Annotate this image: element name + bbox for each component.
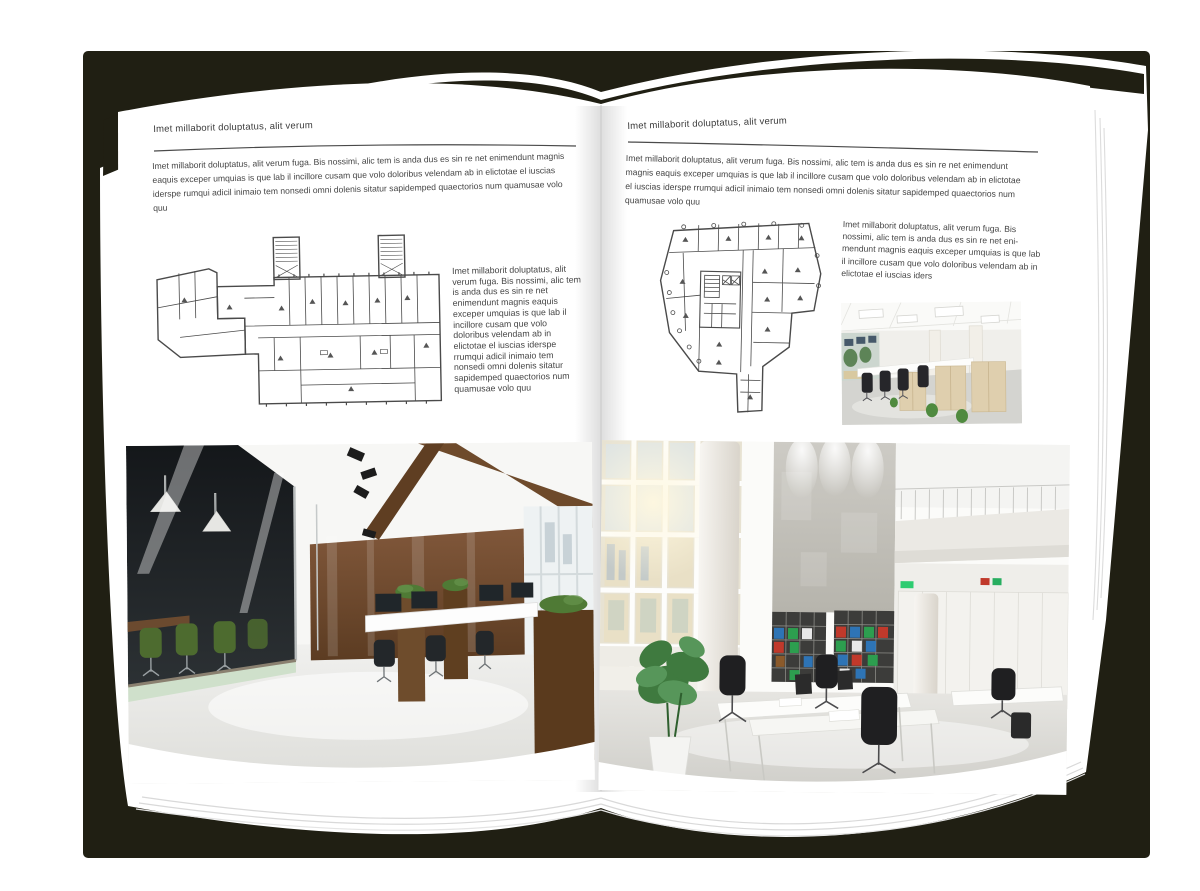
- left-intro-paragraph: Imet millaborit doluptatus, alit verum f…: [152, 150, 567, 216]
- dark-loft-office-photo: [126, 442, 595, 784]
- right-small-photo: [841, 301, 1022, 425]
- left-side-column: Imet millaborit doluptatus, alit verum f…: [452, 263, 585, 394]
- left-header-text: Imet millaborit doluptatus, alit verum: [153, 120, 313, 135]
- right-side-column: Imet millaborit doluptatus, alit verum f…: [841, 218, 1043, 285]
- bright-cubicle-office-photo: [841, 301, 1022, 425]
- right-office-photo: [598, 440, 1070, 795]
- right-intro-paragraph: Imet millaborit doluptatus, alit verum f…: [625, 152, 1026, 216]
- left-floor-plan: [148, 222, 454, 426]
- floor-plan-left-drawing: [148, 222, 454, 426]
- right-header-rule: [627, 138, 1039, 154]
- book-mockup-canvas: Imet millaborit doluptatus, alit verum I…: [0, 0, 1200, 891]
- right-floor-plan: [640, 212, 840, 424]
- white-double-height-office-photo: [598, 440, 1070, 795]
- left-office-photo: [126, 442, 595, 784]
- floor-plan-right-drawing: [640, 212, 840, 424]
